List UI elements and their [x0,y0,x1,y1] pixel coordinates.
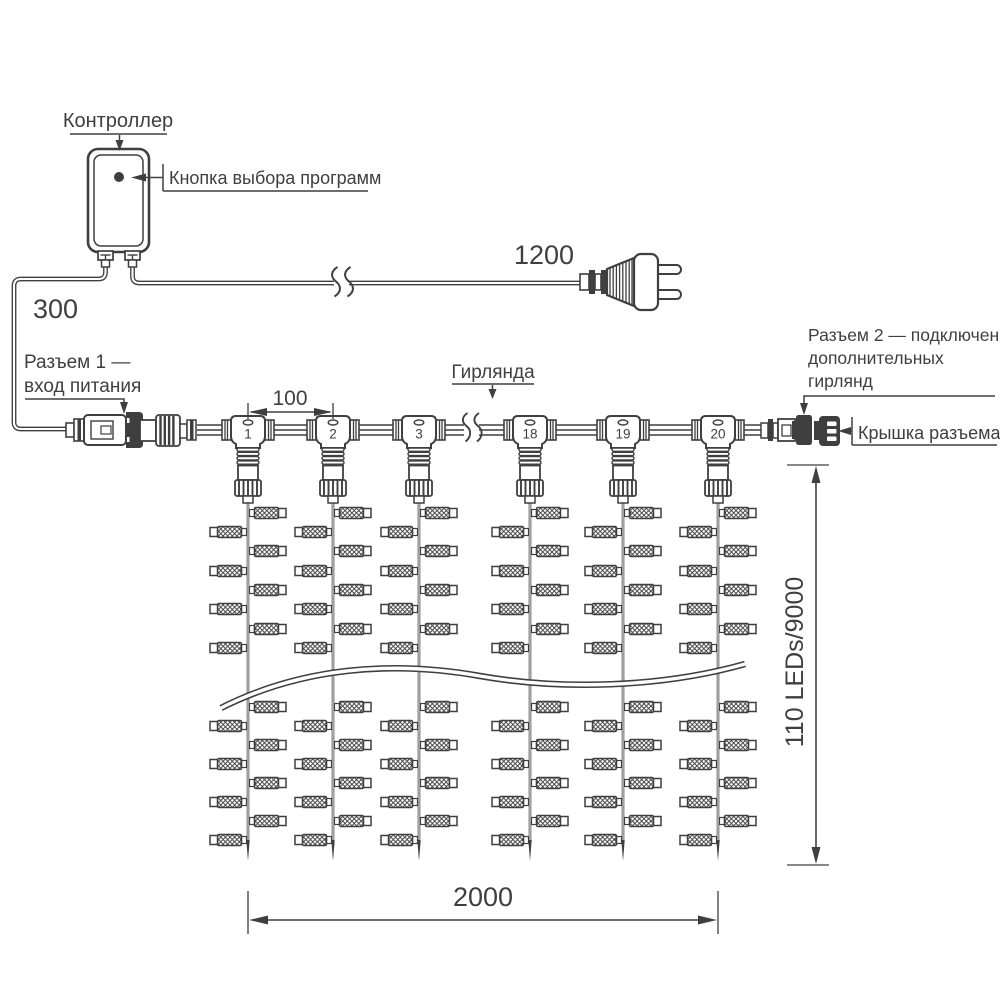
drop-plug [613,466,633,481]
wire-length-300: 300 [33,294,78,324]
led-body [500,721,524,732]
led-body [255,778,279,789]
t-hanger-hole [525,420,535,425]
led [719,778,756,789]
led-body [255,740,279,751]
led-body [218,527,242,538]
led-body [630,702,654,713]
led [381,721,418,732]
led-cap [654,741,662,750]
led-cap [680,644,688,653]
program-button-dot[interactable] [114,172,124,182]
dim-arrow-up [812,466,821,483]
garland-input-connector [140,415,196,446]
led-cap [680,760,688,769]
led-cap [561,509,569,518]
led-body [340,740,364,751]
led [295,835,332,846]
led-body [593,721,617,732]
led-body [593,604,617,615]
led-cap [680,836,688,845]
led-body [426,508,450,519]
led [295,721,332,732]
drop-ring [322,452,344,455]
led-body [303,835,327,846]
controller-label: Контроллер [63,110,173,132]
led-cap [654,586,662,595]
garland-drop: 19 [585,416,661,861]
led-cap [364,625,372,634]
led [492,604,529,615]
led-cap [295,644,303,653]
led [334,778,371,789]
led-body [218,566,242,577]
garland-drop: 20 [680,416,756,861]
led-cap [749,817,757,826]
led-cap [295,722,303,731]
led [249,546,286,557]
led-cap [654,779,662,788]
dim-label-100: 100 [272,387,307,410]
led [680,721,717,732]
t-side-port [307,420,316,440]
led-body [340,778,364,789]
drop-ring [237,452,259,455]
led [210,643,247,654]
led-cap [749,703,757,712]
led-cap [561,547,569,556]
led [680,604,717,615]
led-cap [585,528,593,537]
led-body [688,643,712,654]
led-cap [450,547,458,556]
connector-number: 18 [522,427,537,442]
controller-inner-panel [94,155,143,246]
led [719,585,756,596]
plug-pin [101,426,111,434]
garland-drop: 1 [210,416,286,861]
led-body [218,643,242,654]
led-body [389,759,413,770]
led-cap [210,760,218,769]
led [492,759,529,770]
led-cap [295,836,303,845]
led-cap [492,798,500,807]
drop-tail [525,496,535,503]
led-body [593,643,617,654]
led-body [303,643,327,654]
led [381,527,418,538]
led-body [426,740,450,751]
connector1-label-line1: Разъем 1 — [24,352,130,373]
cap-label: Крышка разъема [858,423,1000,443]
dim-arrow-right [698,916,717,925]
led-cap [295,528,303,537]
drop-tail [618,496,628,503]
drop-ring [408,457,430,460]
led [295,797,332,808]
led-cap [680,528,688,537]
plug-grip [607,258,634,306]
led-body [630,778,654,789]
led-body [255,585,279,596]
drop-tail [414,496,424,503]
led-cap [561,703,569,712]
led-body [688,566,712,577]
drop-ring [237,457,259,460]
led-cap [680,567,688,576]
led-cap [749,779,757,788]
led-body [340,816,364,827]
led-cap [210,722,218,731]
led-cap [450,703,458,712]
drop-ring [519,452,541,455]
led-body [725,508,749,519]
led [531,740,568,751]
drop-ring [707,448,729,451]
drop-tail [328,496,338,503]
led-body [255,624,279,635]
dimension-curtain-height: 110 LEDs/9000 [781,465,829,865]
led [249,740,286,751]
t-hanger-hole [713,420,723,425]
led [680,566,717,577]
drop-ring [707,457,729,460]
led-cap [561,817,569,826]
led-cap [749,625,757,634]
led-body [630,816,654,827]
led [719,546,756,557]
loose-wire-outer [221,664,745,708]
led-body [500,566,524,577]
led-body [389,527,413,538]
led-cap [492,722,500,731]
power-input-wire [14,264,106,429]
led-body [593,797,617,808]
t-side-port [393,420,402,440]
loose-wire [221,664,745,708]
led [381,797,418,808]
dim-arrow-left [249,916,268,925]
led-body [537,816,561,827]
dim-label-height: 110 LEDs/9000 [781,577,809,748]
led-body [688,721,712,732]
led [420,508,457,519]
led-cap [210,605,218,614]
led-body [426,778,450,789]
led [210,527,247,538]
connector1-plug [66,412,143,448]
plug-segment [66,423,74,437]
led-cap [492,605,500,614]
led [381,566,418,577]
led [210,797,247,808]
power-plug [580,252,681,312]
power-input-wire-core [14,264,106,429]
led [492,721,529,732]
led-body [500,643,524,654]
led-body [255,508,279,519]
led-body [537,740,561,751]
drop-ring [408,452,430,455]
drop-ring [519,457,541,460]
led [249,585,286,596]
led-body [537,624,561,635]
led [295,759,332,770]
drop-ring [322,448,344,451]
led [210,835,247,846]
led-cap [450,741,458,750]
led-body [500,759,524,770]
led-body [688,797,712,808]
t-side-port [597,420,606,440]
led-cap [450,509,458,518]
led [420,546,457,557]
led [295,604,332,615]
led-cap [210,836,218,845]
drop-tail [713,496,723,503]
connector2-label-line3: гирлянд [808,371,873,391]
led [210,604,247,615]
drop-ring [707,452,729,455]
led-cap [279,817,287,826]
led-cap [295,567,303,576]
led [420,740,457,751]
connector-inner [782,425,791,436]
garland-drop: 2 [295,416,371,861]
led [249,816,286,827]
led [334,702,371,713]
led-body [725,546,749,557]
led-cap [749,586,757,595]
led-cap [680,605,688,614]
led [334,546,371,557]
drop-ring [408,461,430,464]
t-side-port [640,420,649,440]
led [249,778,286,789]
led [420,816,457,827]
connector2-plug [796,415,812,445]
led [624,624,661,635]
led-cap [210,644,218,653]
cap-slot [827,422,837,427]
led-body [426,702,450,713]
led-body [593,527,617,538]
led-cap [381,567,389,576]
controller [88,149,149,267]
led-body [426,546,450,557]
led-cap [364,703,372,712]
led [680,835,717,846]
led [531,816,568,827]
connector-cap [814,416,840,446]
led [680,527,717,538]
led-body [218,604,242,615]
led [334,816,371,827]
led [680,643,717,654]
led [531,624,568,635]
led-cap [749,509,757,518]
led-cap [381,798,389,807]
led-cap [279,741,287,750]
led-cap [585,798,593,807]
led [381,643,418,654]
garland-arrow [489,389,497,399]
led-body [340,546,364,557]
led [531,585,568,596]
led-body [218,721,242,732]
led-body [340,702,364,713]
program-button-label: Кнопка выбора программ [169,168,381,188]
led-cap [295,760,303,769]
connector2-label-line2: дополнительных [808,348,944,368]
led-body [630,585,654,596]
led-body [218,835,242,846]
cap-slot [827,429,837,434]
connector1-label-line2: вход питания [24,376,141,397]
led-cap [210,528,218,537]
led-body [725,624,749,635]
connector-stripe [190,420,194,440]
led-body [389,835,413,846]
led-body [303,721,327,732]
led-cap [279,703,287,712]
led-body [340,624,364,635]
led-cap [561,741,569,750]
led [719,816,756,827]
led-body [303,759,327,770]
led-cap [295,605,303,614]
connector-number: 2 [329,427,337,442]
dimension-curtain-width: 2000 [248,882,718,934]
led-cap [749,741,757,750]
led [624,778,661,789]
led [585,527,622,538]
led-cap [654,625,662,634]
led [420,778,457,789]
led [531,508,568,519]
t-side-port [547,420,556,440]
plug-head [634,254,658,310]
led-body [500,604,524,615]
drop-ring [612,461,634,464]
led [249,508,286,519]
led-body [340,508,364,519]
dim-label-2000: 2000 [453,882,513,912]
connector1-leader [25,399,124,403]
led-cap [492,644,500,653]
connector-number: 3 [415,427,423,442]
led [334,740,371,751]
led [719,702,756,713]
plug-stripe [78,419,82,441]
led [531,778,568,789]
led-body [426,624,450,635]
drop-ring [322,457,344,460]
led [381,835,418,846]
led [295,527,332,538]
dim-arrow-left [249,408,267,416]
led-body [688,604,712,615]
led-cap [381,605,389,614]
led-cap [364,586,372,595]
led [531,546,568,557]
led-body [255,816,279,827]
led-body [303,604,327,615]
t-hanger-hole [328,420,338,425]
led-body [725,740,749,751]
led-cap [585,760,593,769]
led-cap [279,586,287,595]
led-body [340,585,364,596]
led-cap [654,817,662,826]
led-body [389,721,413,732]
drop-ring [408,448,430,451]
led-body [537,546,561,557]
led-cap [561,779,569,788]
led [420,624,457,635]
led-cap [381,722,389,731]
diagram-canvas: 123181920 [0,0,1000,1000]
led [492,643,529,654]
t-side-port [436,420,445,440]
led-body [500,835,524,846]
outlet-nub [129,260,137,267]
led [719,508,756,519]
led-cap [654,547,662,556]
led [334,585,371,596]
drop-plug [708,466,728,481]
garland-label: Гирлянда [451,362,535,383]
connector-number: 1 [244,427,252,442]
led-cap [381,836,389,845]
led [585,721,622,732]
led-body [630,508,654,519]
led-body [255,546,279,557]
led [334,624,371,635]
led-body [389,797,413,808]
drop-ring [612,452,634,455]
led-cap [364,547,372,556]
led-body [303,566,327,577]
led-cap [279,509,287,518]
garland-strands: 123181920 [210,416,756,861]
led-body [389,566,413,577]
led [210,566,247,577]
led-cap [585,567,593,576]
connector2-arrow [800,403,808,415]
dimension-drop-spacing: 100 [248,387,333,419]
led-cap [492,836,500,845]
led-body [725,778,749,789]
drop-plug [520,466,540,481]
t-hanger-hole [414,420,424,425]
led-cap [585,605,593,614]
connector-segment [761,423,768,438]
led [492,527,529,538]
led-cap [654,703,662,712]
drop-tail [243,496,253,503]
dim-arrow-down [812,847,821,864]
drop-ring [519,461,541,464]
led-body [389,604,413,615]
led-cap [561,625,569,634]
drop-ring [322,461,344,464]
led-cap [364,741,372,750]
cap-slot [827,437,837,442]
led [624,546,661,557]
led-cap [585,722,593,731]
